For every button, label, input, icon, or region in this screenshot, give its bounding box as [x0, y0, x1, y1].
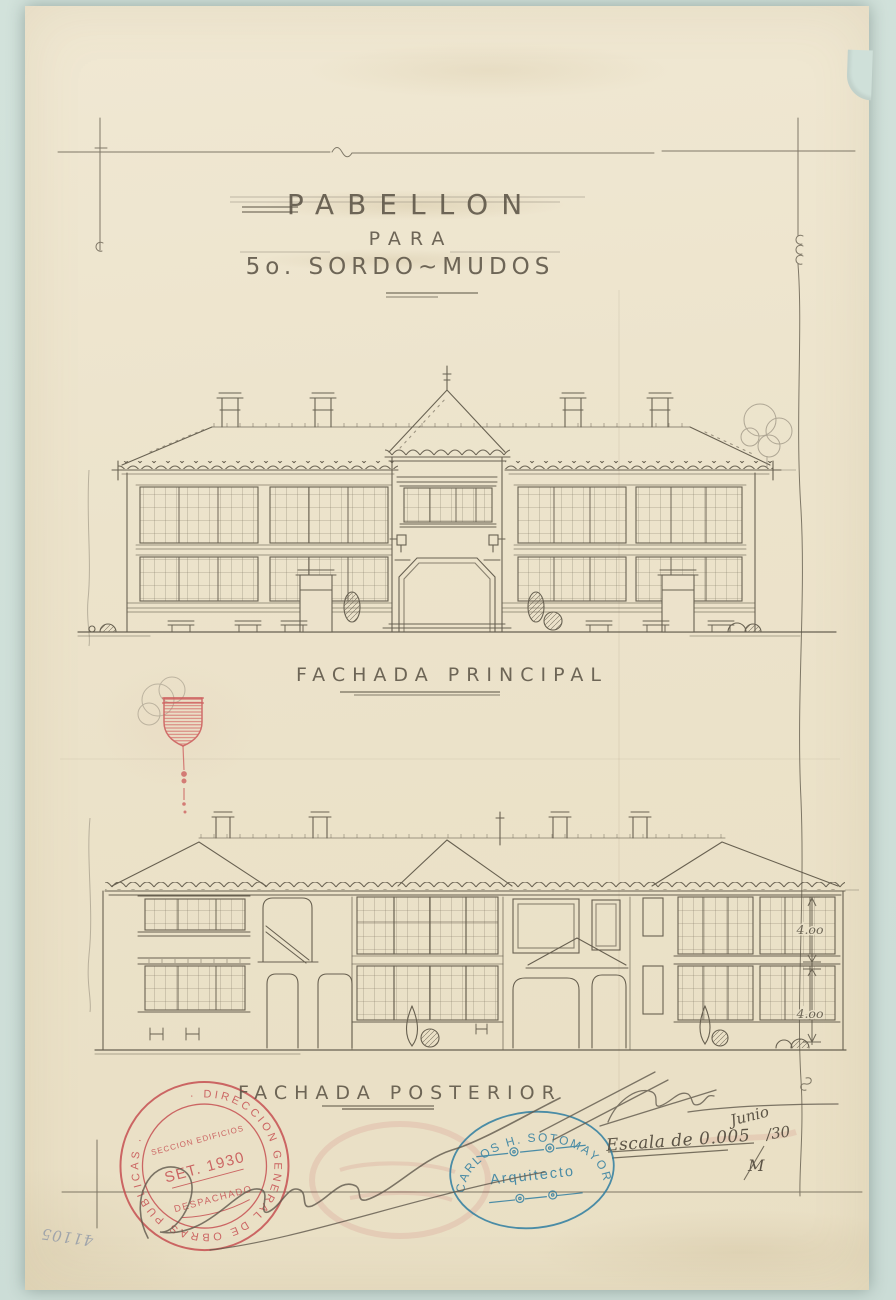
sheet-title-line3: 5o. SORDO~MUDOS: [228, 254, 572, 280]
label-rear-facade: FACHADA POSTERIOR: [238, 1082, 538, 1104]
date-year-note: /30: [765, 1122, 791, 1143]
sheet-mark: M: [748, 1156, 764, 1175]
main-facade-drawing: [78, 366, 836, 636]
scanned-sheet: 4.oo 4.oo · DIRECC: [0, 0, 896, 1300]
tree-sketch: [741, 404, 792, 468]
dim-lower-label: 4.oo: [796, 1006, 824, 1021]
red-stamp-line3: DESPACHADO: [173, 1184, 254, 1216]
sheet-title-line1: PABELLON: [282, 188, 540, 221]
rear-facade-drawing: [95, 812, 846, 1054]
red-shield-doodle: [138, 677, 204, 813]
sheet-title-line2: PARA: [332, 228, 490, 250]
label-main-facade: FACHADA PRINCIPAL: [296, 664, 596, 686]
blue-stamp-center-text: Arquitecto: [489, 1164, 576, 1189]
dim-upper-label: 4.oo: [796, 922, 824, 937]
